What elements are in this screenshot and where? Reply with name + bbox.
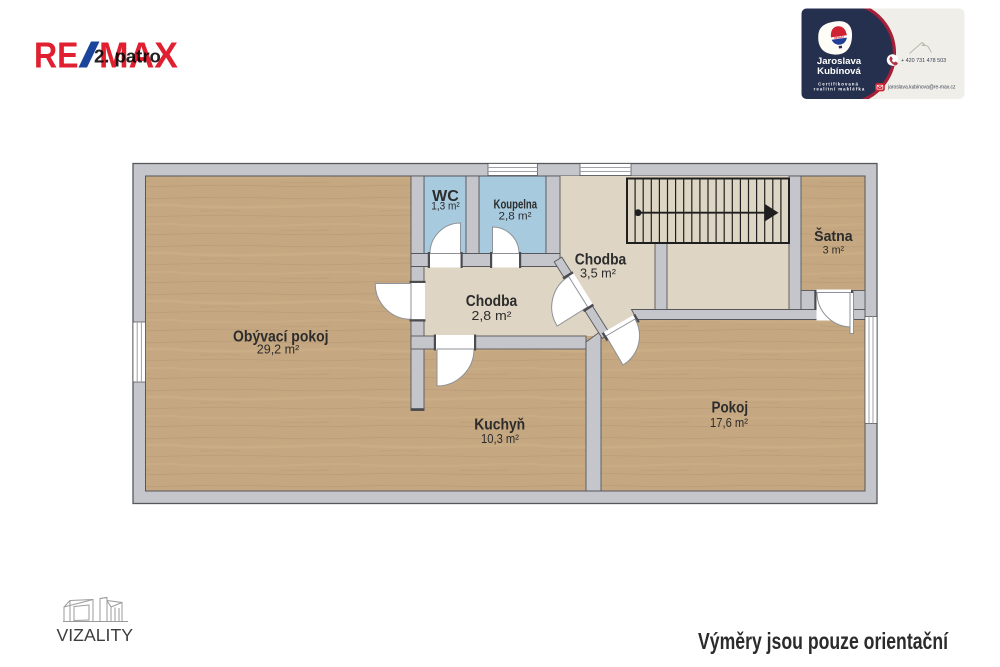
svg-text:Kubínová: Kubínová — [817, 66, 861, 77]
svg-text:10,3 m²: 10,3 m² — [481, 432, 519, 446]
svg-text:2,8 m²: 2,8 m² — [472, 309, 512, 323]
svg-text:1,3 m²: 1,3 m² — [431, 201, 460, 213]
svg-text:2,8 m²: 2,8 m² — [499, 211, 532, 223]
svg-text:VIZALITY: VIZALITY — [57, 625, 134, 645]
svg-text:realitní makléřka: realitní makléřka — [814, 87, 866, 92]
svg-text:3,5 m²: 3,5 m² — [580, 267, 616, 281]
svg-text:jaroslava.kubinova@re-max.cz: jaroslava.kubinova@re-max.cz — [887, 84, 956, 90]
svg-text:3 m²: 3 m² — [823, 245, 845, 257]
svg-text:Chodba: Chodba — [466, 293, 518, 310]
svg-text:Šatna: Šatna — [814, 227, 853, 245]
svg-text:Pokoj: Pokoj — [712, 399, 749, 416]
svg-text:17,6 m²: 17,6 m² — [710, 416, 748, 430]
svg-text:+ 420 731 478 503: + 420 731 478 503 — [901, 58, 946, 64]
svg-text:Kuchyň: Kuchyň — [474, 417, 525, 434]
svg-text:Koupelna: Koupelna — [494, 198, 538, 212]
svg-text:2. patro: 2. patro — [94, 46, 161, 67]
svg-text:Výměry jsou pouze orientační: Výměry jsou pouze orientační — [698, 628, 949, 654]
svg-text:29,2 m²: 29,2 m² — [257, 343, 300, 357]
svg-text:RE: RE — [34, 35, 79, 76]
